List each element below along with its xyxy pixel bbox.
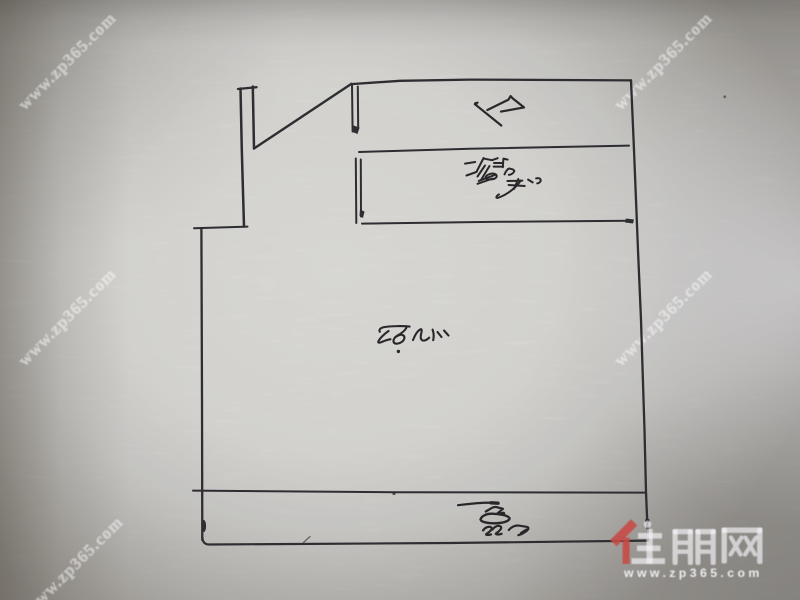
- svg-text:www.zp365.com: www.zp365.com: [623, 566, 763, 580]
